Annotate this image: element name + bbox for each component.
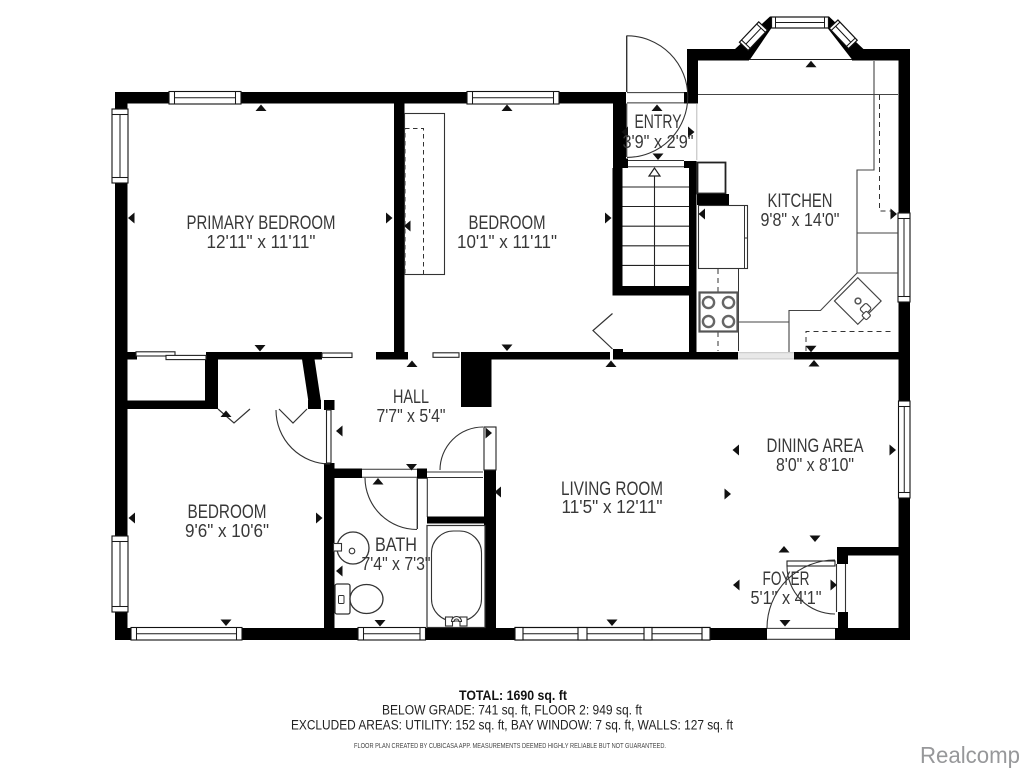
svg-text:9'6" x 10'6": 9'6" x 10'6"	[185, 521, 269, 541]
svg-text:EXCLUDED AREAS: UTILITY: 152 s: EXCLUDED AREAS: UTILITY: 152 sq. ft, BAY…	[291, 718, 733, 733]
svg-text:11'5" x 12'11": 11'5" x 12'11"	[562, 497, 663, 517]
svg-text:5'1" x 4'1": 5'1" x 4'1"	[751, 588, 822, 608]
svg-text:10'1" x 11'11": 10'1" x 11'11"	[457, 232, 557, 252]
svg-text:Realcomp: Realcomp	[920, 742, 1020, 768]
svg-text:DINING AREA: DINING AREA	[767, 436, 864, 457]
svg-text:ENTRY: ENTRY	[635, 112, 682, 133]
svg-text:KITCHEN: KITCHEN	[768, 191, 833, 212]
svg-text:BEDROOM: BEDROOM	[188, 502, 267, 523]
svg-text:3'9" x 2'9": 3'9" x 2'9"	[623, 132, 694, 152]
svg-text:BELOW GRADE: 741 sq. ft, FLOOR: BELOW GRADE: 741 sq. ft, FLOOR 2: 949 sq…	[382, 703, 642, 718]
svg-text:9'8" x 14'0": 9'8" x 14'0"	[761, 210, 840, 230]
svg-text:PRIMARY BEDROOM: PRIMARY BEDROOM	[187, 213, 336, 234]
svg-text:FLOOR PLAN CREATED BY CUBICASA: FLOOR PLAN CREATED BY CUBICASA APP. MEAS…	[354, 743, 666, 750]
svg-text:12'11" x 11'11": 12'11" x 11'11"	[207, 232, 316, 252]
svg-text:HALL: HALL	[393, 387, 429, 408]
svg-text:8'0" x 8'10": 8'0" x 8'10"	[776, 455, 854, 475]
svg-text:7'7" x 5'4": 7'7" x 5'4"	[377, 406, 446, 426]
svg-text:BATH: BATH	[375, 535, 417, 556]
svg-text:TOTAL: 1690 sq. ft: TOTAL: 1690 sq. ft	[459, 687, 567, 703]
svg-text:FOYER: FOYER	[763, 569, 810, 590]
svg-text:BEDROOM: BEDROOM	[469, 213, 546, 234]
svg-text:7'4" x 7'3": 7'4" x 7'3"	[362, 554, 431, 574]
